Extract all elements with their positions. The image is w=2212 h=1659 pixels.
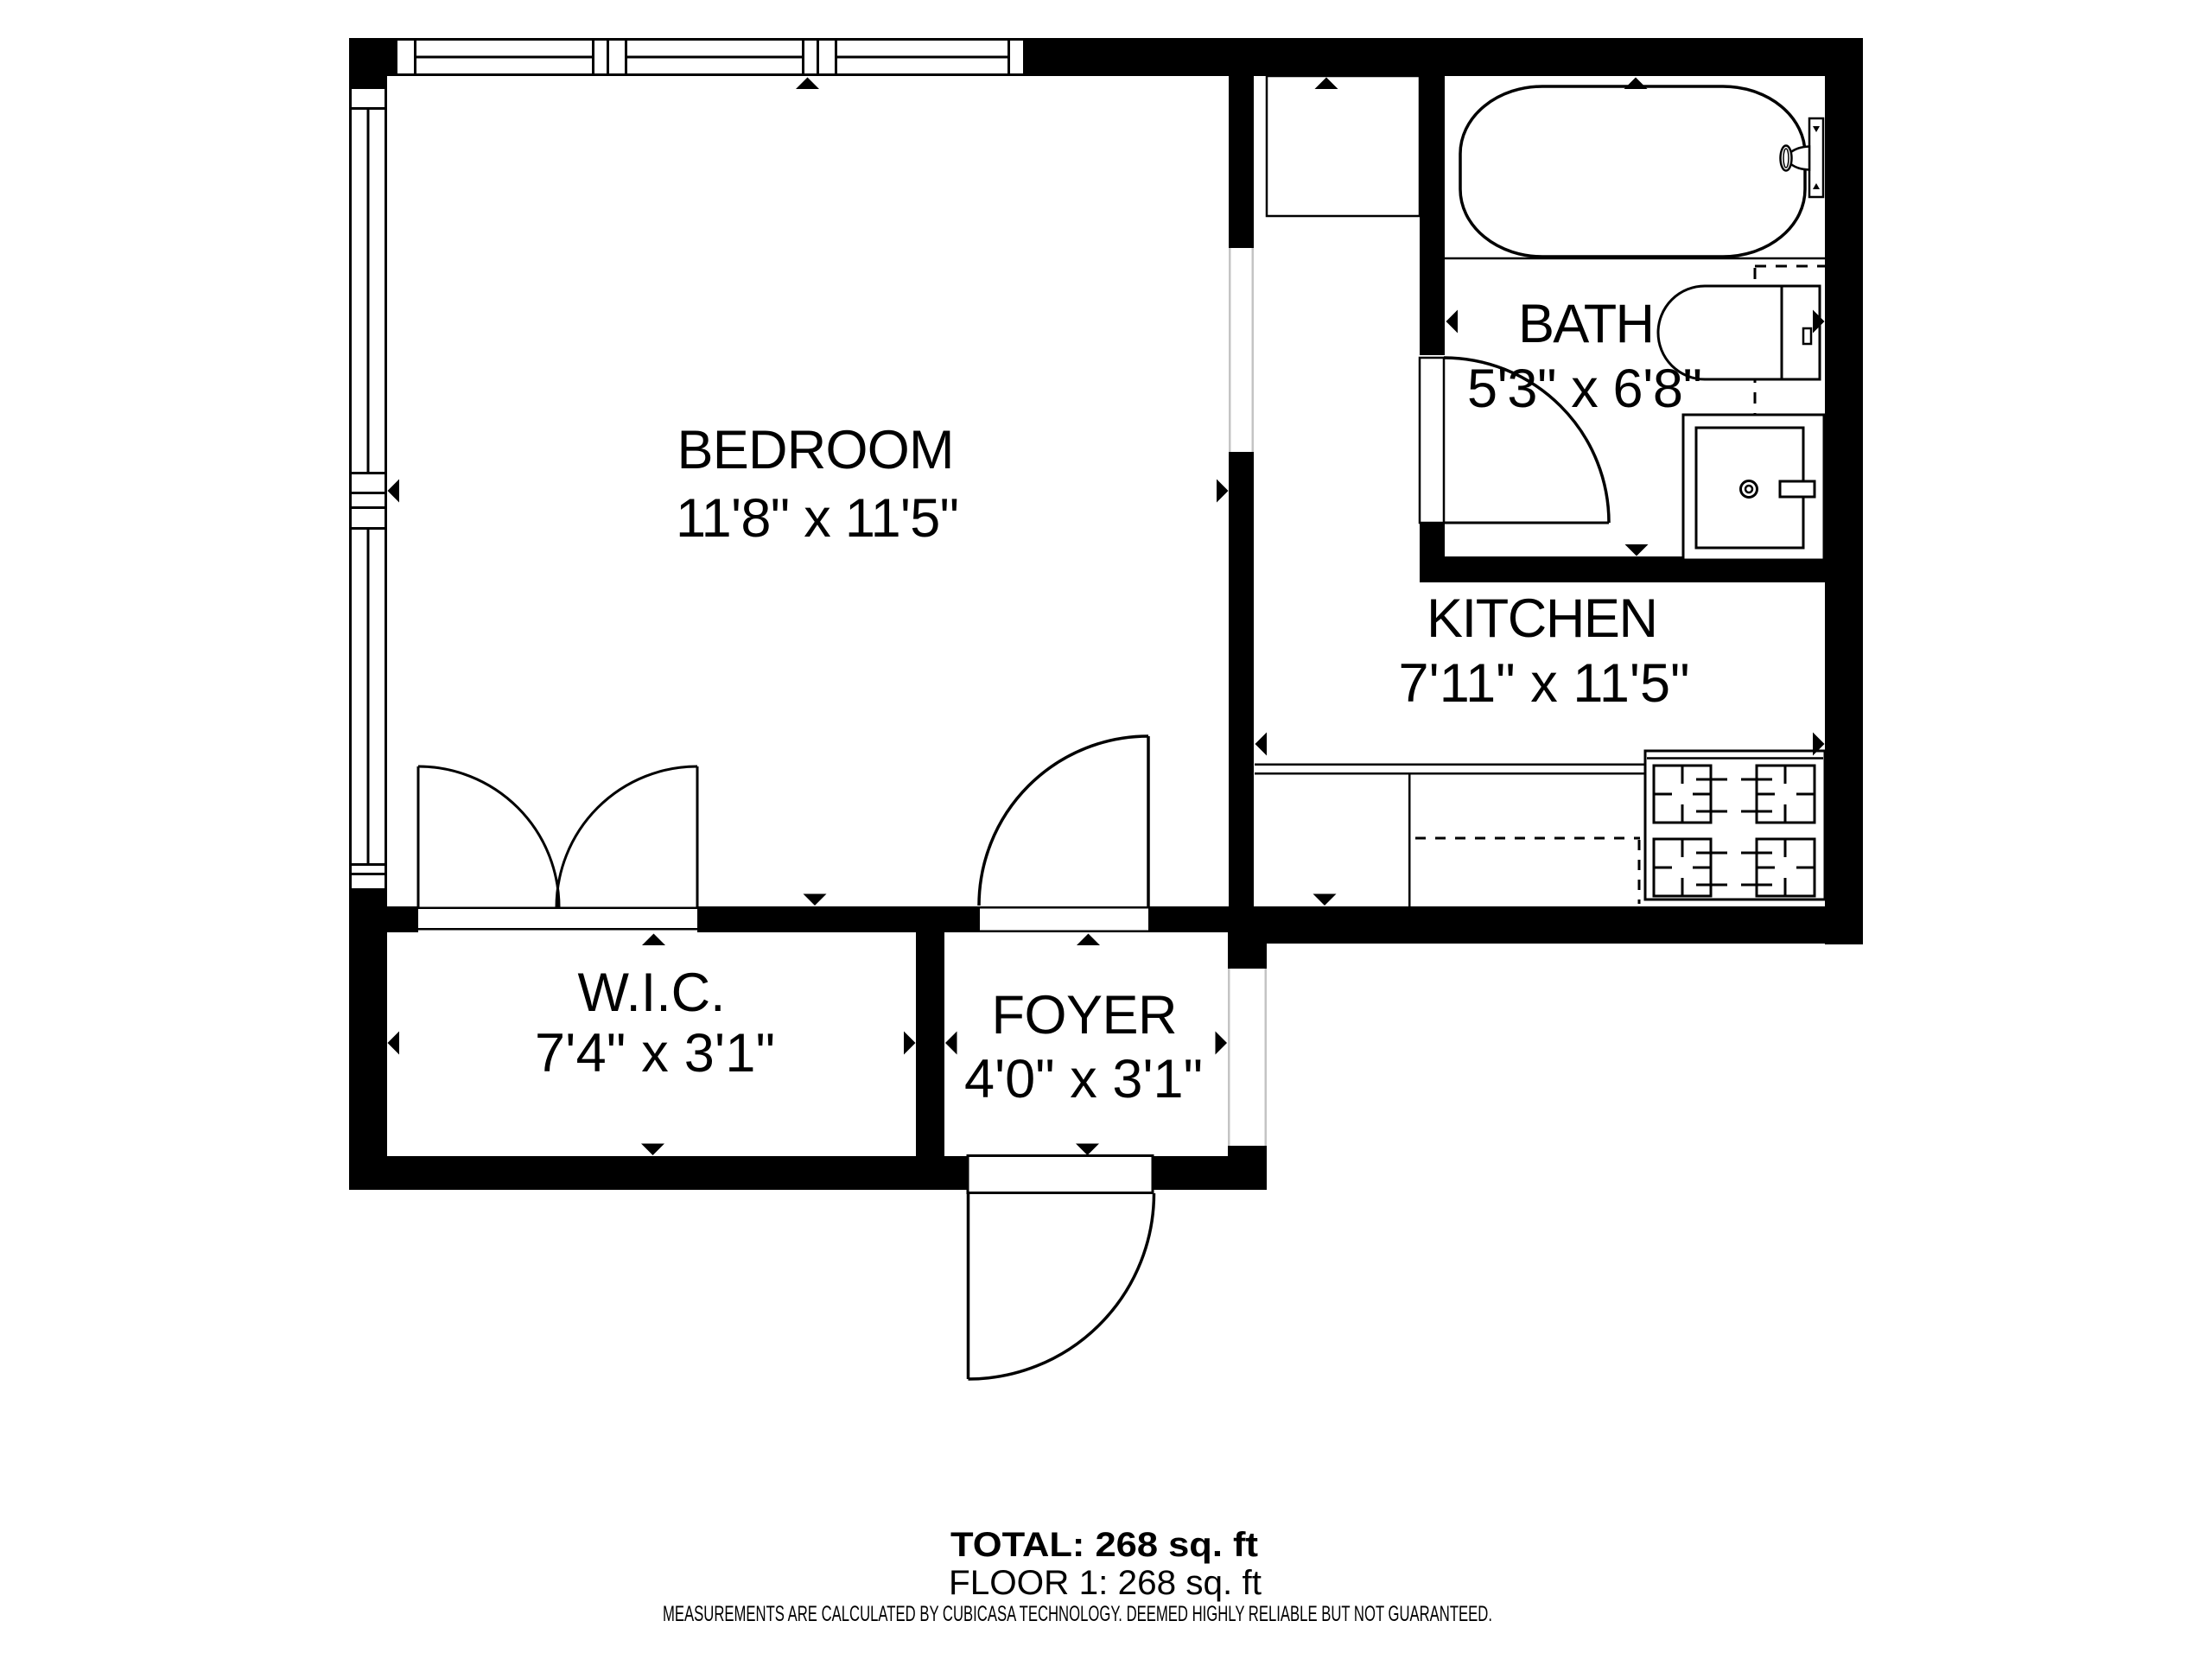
svg-text:5'3" x 6'8": 5'3" x 6'8" <box>1467 359 1702 419</box>
svg-text:BEDROOM: BEDROOM <box>677 420 955 480</box>
svg-text:BATH: BATH <box>1518 294 1655 354</box>
svg-text:KITCHEN: KITCHEN <box>1427 588 1658 649</box>
svg-text:11'8" x 11'5": 11'8" x 11'5" <box>676 488 959 549</box>
svg-text:TOTAL: 268 sq. ft: TOTAL: 268 sq. ft <box>950 1526 1258 1564</box>
svg-text:MEASUREMENTS ARE CALCULATED BY: MEASUREMENTS ARE CALCULATED BY CUBICASA … <box>663 1602 1492 1626</box>
svg-text:7'11" x 11'5": 7'11" x 11'5" <box>1399 653 1690 714</box>
svg-text:W.I.C.: W.I.C. <box>578 963 726 1023</box>
svg-text:7'4" x 3'1": 7'4" x 3'1" <box>535 1023 775 1084</box>
svg-text:FOYER: FOYER <box>992 985 1178 1046</box>
svg-text:4'0" x 3'1": 4'0" x 3'1" <box>964 1049 1203 1109</box>
svg-text:FLOOR 1: 268 sq. ft: FLOOR 1: 268 sq. ft <box>949 1564 1262 1602</box>
